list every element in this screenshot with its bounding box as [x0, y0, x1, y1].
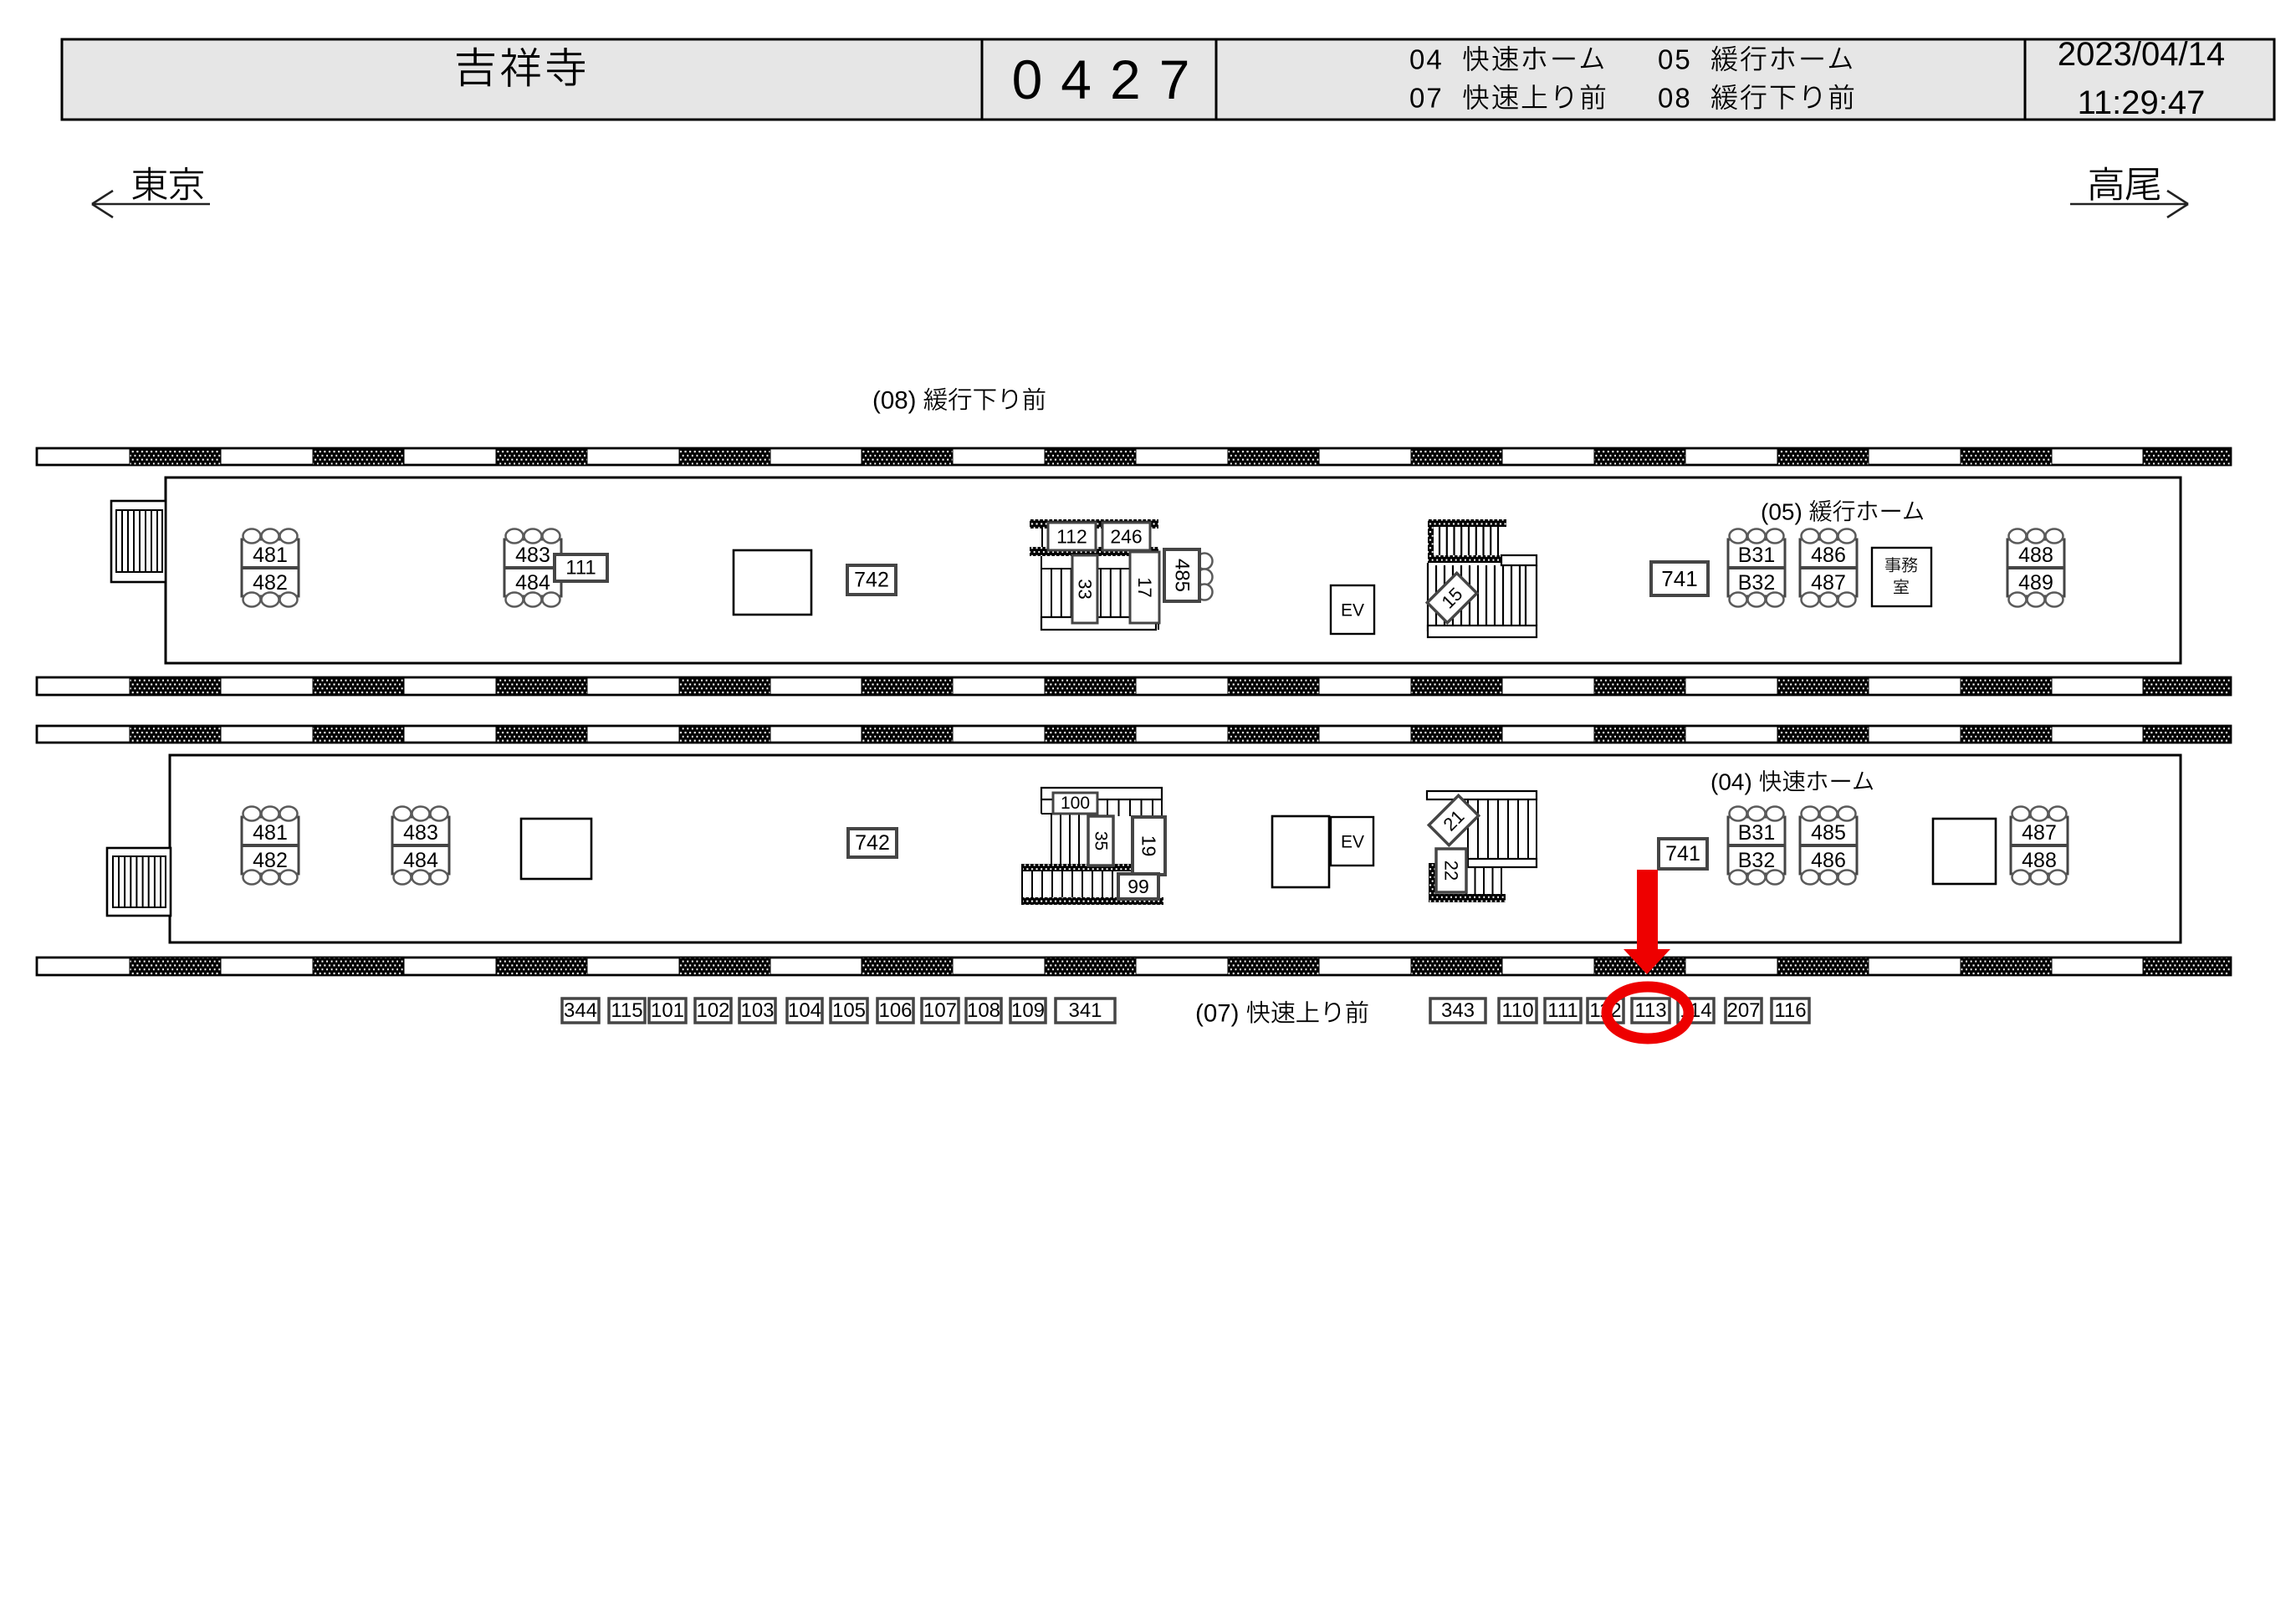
svg-text:111: 111	[1547, 999, 1578, 1022]
svg-text:485: 485	[1811, 821, 1846, 845]
svg-text:東京: 東京	[131, 166, 205, 207]
svg-text:482: 482	[253, 571, 288, 595]
svg-text:11:29:47: 11:29:47	[2078, 84, 2206, 121]
svg-text:482: 482	[253, 849, 288, 872]
svg-text:115: 115	[611, 999, 642, 1022]
svg-text:207: 207	[1726, 999, 1760, 1022]
svg-text:485: 485	[1171, 559, 1194, 592]
svg-text:B32: B32	[1738, 849, 1775, 872]
svg-text:B31: B31	[1738, 821, 1775, 845]
svg-text:35: 35	[1092, 831, 1111, 850]
svg-text:341: 341	[1068, 999, 1102, 1022]
svg-text:488: 488	[2018, 544, 2053, 567]
svg-text:484: 484	[403, 849, 438, 872]
svg-text:102: 102	[696, 999, 729, 1022]
svg-text:486: 486	[1811, 849, 1846, 872]
svg-text:105: 105	[832, 999, 866, 1022]
svg-text:488: 488	[2022, 849, 2057, 872]
svg-text:116: 116	[1774, 999, 1806, 1022]
svg-text:106: 106	[878, 999, 912, 1022]
svg-text:486: 486	[1811, 544, 1846, 567]
svg-text:344: 344	[564, 999, 597, 1022]
svg-text:487: 487	[1811, 571, 1846, 595]
svg-text:113: 113	[1634, 999, 1666, 1022]
svg-text:高尾: 高尾	[2088, 166, 2161, 207]
svg-text:33: 33	[1075, 579, 1096, 599]
svg-text:741: 741	[1665, 842, 1700, 866]
svg-text:22: 22	[1441, 861, 1462, 881]
svg-text:108: 108	[967, 999, 1000, 1022]
svg-text:104: 104	[788, 999, 821, 1022]
svg-text:2023/04/14: 2023/04/14	[2058, 36, 2225, 73]
svg-text:110: 110	[1501, 999, 1533, 1022]
svg-text:483: 483	[515, 544, 550, 567]
svg-text:17: 17	[1134, 577, 1155, 597]
svg-text:742: 742	[855, 831, 890, 855]
svg-text:103: 103	[740, 999, 774, 1022]
svg-text:吉祥寺: 吉祥寺	[454, 45, 590, 93]
svg-text:19: 19	[1138, 835, 1160, 857]
svg-text:107: 107	[923, 999, 957, 1022]
svg-text:04 快速ホーム: 04 快速ホーム	[1409, 44, 1608, 75]
svg-text:742: 742	[854, 569, 889, 592]
svg-text:111: 111	[565, 557, 596, 580]
svg-text:101: 101	[651, 999, 684, 1022]
svg-text:05 緩行ホーム: 05 緩行ホーム	[1658, 44, 1856, 75]
svg-text:112: 112	[1056, 526, 1087, 548]
svg-text:(04) 快速ホーム: (04) 快速ホーム	[1710, 769, 1874, 795]
svg-text:483: 483	[403, 821, 438, 845]
svg-text:室: 室	[1893, 579, 1910, 597]
svg-text:07 快速上り前: 07 快速上り前	[1409, 83, 1608, 114]
svg-text:08 緩行下り前: 08 緩行下り前	[1658, 83, 1857, 114]
svg-text:481: 481	[253, 544, 288, 567]
svg-text:741: 741	[1661, 566, 1697, 591]
svg-text:109: 109	[1011, 999, 1045, 1022]
svg-text:100: 100	[1061, 794, 1090, 813]
svg-text:489: 489	[2018, 571, 2053, 595]
svg-text:(08) 緩行下り前: (08) 緩行下り前	[872, 387, 1046, 415]
svg-text:(07) 快速上り前: (07) 快速上り前	[1195, 1000, 1369, 1028]
svg-text:481: 481	[253, 821, 288, 845]
svg-text:0427: 0427	[1012, 49, 1209, 110]
svg-text:B32: B32	[1738, 571, 1775, 595]
svg-text:(05) 緩行ホーム: (05) 緩行ホーム	[1761, 499, 1925, 525]
svg-text:事務: 事務	[1884, 557, 1918, 575]
svg-text:484: 484	[515, 571, 550, 595]
svg-text:99: 99	[1128, 876, 1149, 897]
svg-text:343: 343	[1441, 999, 1475, 1022]
svg-text:487: 487	[2022, 821, 2057, 845]
svg-text:246: 246	[1110, 526, 1142, 548]
svg-text:B31: B31	[1738, 544, 1775, 567]
svg-text:EV: EV	[1341, 833, 1364, 852]
svg-text:EV: EV	[1341, 601, 1364, 620]
